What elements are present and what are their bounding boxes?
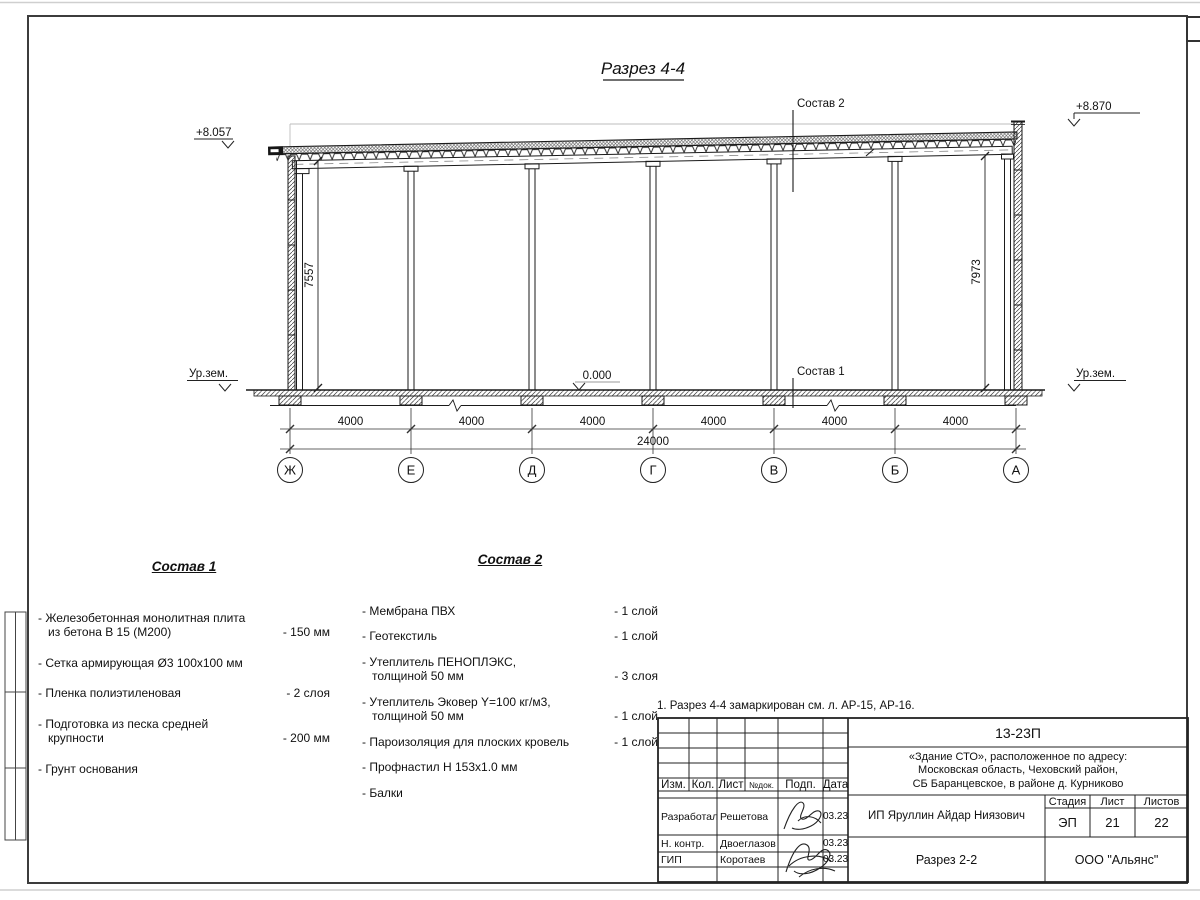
- axis-bubbles: Ж Е Д Г В Б А: [278, 458, 1029, 483]
- dim-bay-6: 4000: [943, 416, 969, 428]
- tb-name-gip: Коротаев: [720, 852, 777, 867]
- composition-1: Состав 1 - Железобетонная монолитная пли…: [38, 560, 330, 792]
- tb-date-gip: 03.23: [823, 852, 848, 867]
- list-item: - Утеплитель Эковер Y=100 кг/м3, толщино…: [362, 695, 658, 724]
- tb-sheets-value: 22: [1135, 808, 1188, 837]
- filing-strip: [5, 612, 26, 840]
- tb-role-developer: Разработал: [661, 798, 716, 835]
- tb-company: ООО "Альянс": [1045, 837, 1188, 882]
- tb-date-control: 03.23: [823, 835, 848, 852]
- tb-sheets-label: Листов: [1135, 795, 1188, 808]
- tb-col-ndok: №док.: [745, 778, 778, 791]
- tb-sheet-value: 21: [1090, 808, 1135, 837]
- list-item: - Пленка полиэтиленовая - 2 слоя: [38, 686, 330, 701]
- list-item: - Геотекстиль - 1 слой: [362, 629, 658, 644]
- list-item: - Профнастил Н 153х1.0 мм: [362, 760, 658, 775]
- list-item: - Утеплитель ПЕНОПЛЭКС, толщиной 50 мм -…: [362, 655, 658, 684]
- floor-slab: [246, 390, 1045, 396]
- sheet-note: 1. Разрез 4-4 замаркирован см. л. АР-15,…: [657, 700, 1087, 712]
- leader-roof-label: Состав 2: [797, 98, 845, 110]
- dim-chain: 4000 4000 4000 4000 4000 4000 24000: [280, 408, 1026, 454]
- axis-label-6: Б: [891, 463, 900, 478]
- list-item: - Сетка армирующая Ø3 100х100 мм: [38, 656, 330, 671]
- axis-label-5: В: [770, 463, 779, 478]
- elevation-zero-label: 0.000: [583, 370, 612, 382]
- list-item: - Балки: [362, 786, 658, 801]
- leader-floor-label: Состав 1: [797, 366, 845, 378]
- dim-height-left: 7557: [304, 157, 322, 392]
- corner-stamp-box: [1187, 17, 1200, 41]
- ground-level-right: Ур.зем.: [1068, 368, 1126, 391]
- leader-floor-composition: Состав 1: [793, 366, 845, 408]
- view-title: Разрез 4-4: [601, 59, 685, 80]
- axis-label-7: А: [1012, 463, 1021, 478]
- dim-height-right-label: 7973: [971, 259, 983, 285]
- dim-bay-5: 4000: [822, 416, 848, 428]
- list-item: - Мембрана ПВХ - 1 слой: [362, 604, 658, 619]
- tb-col-podp: Подп.: [778, 778, 823, 791]
- axis-label-2: Е: [407, 463, 416, 478]
- composition-1-title: Состав 1: [38, 560, 330, 575]
- elevation-right-label: +8.870: [1076, 101, 1112, 113]
- dim-height-right: 7973: [971, 152, 989, 392]
- list-item: - Подготовка из песка средней крупности …: [38, 717, 330, 746]
- axis-label-3: Д: [528, 463, 537, 478]
- tb-client: ИП Яруллин Айдар Ниязович: [848, 795, 1045, 837]
- tb-sheet-label: Лист: [1090, 795, 1135, 808]
- dim-bay-3: 4000: [580, 416, 606, 428]
- columns: [404, 156, 902, 390]
- tb-date-developer: 03.23: [823, 798, 848, 835]
- dim-height-left-label: 7557: [304, 262, 316, 288]
- dim-total: 24000: [637, 436, 669, 448]
- axis-label-4: Г: [649, 463, 656, 478]
- tb-role-gip: ГИП: [661, 852, 716, 867]
- tb-col-izm: Изм.: [658, 778, 689, 791]
- composition-2-title: Состав 2: [362, 553, 658, 568]
- tb-sheet-title: Разрез 2-2: [848, 837, 1045, 882]
- ground-level-left: Ур.зем.: [187, 368, 238, 391]
- signature-developer: [784, 802, 821, 829]
- elevation-zero: 0.000: [573, 370, 620, 390]
- tb-col-kol: Кол.: [689, 778, 717, 791]
- tb-doc-number: 13-23П: [848, 718, 1188, 747]
- footings: [270, 396, 1027, 411]
- composition-2: Состав 2 - Мембрана ПВХ - 1 слой - Геоте…: [362, 553, 658, 811]
- dim-bay-4: 4000: [701, 416, 727, 428]
- elevation-right: +8.870: [1068, 101, 1140, 126]
- view-title-label: Разрез 4-4: [601, 59, 685, 78]
- tb-project-name: «Здание СТО», расположенное по адресу: М…: [848, 747, 1188, 795]
- list-item: - Грунт основания: [38, 762, 330, 777]
- tb-name-control: Двоеглазов: [720, 835, 777, 852]
- tb-role-control: Н. контр.: [661, 835, 716, 852]
- ground-right-label: Ур.зем.: [1076, 368, 1115, 380]
- dim-bay-1: 4000: [338, 416, 364, 428]
- roof-assembly: [268, 131, 1017, 169]
- axis-label-1: Ж: [284, 463, 296, 478]
- list-item: - Железобетонная монолитная плита из бет…: [38, 611, 330, 640]
- list-item: - Пароизоляция для плоских кровель - 1 с…: [362, 735, 658, 750]
- elevation-left-label: +8.057: [196, 127, 232, 139]
- tb-col-data: Дата: [823, 778, 848, 791]
- tb-stage-value: ЭП: [1045, 808, 1090, 837]
- roof-edge-cap: [268, 146, 283, 155]
- elevation-left: +8.057: [194, 127, 234, 148]
- ground-left-label: Ур.зем.: [189, 368, 228, 380]
- dim-bay-2: 4000: [459, 416, 485, 428]
- tb-name-developer: Решетова: [720, 798, 777, 835]
- tb-stage-label: Стадия: [1045, 795, 1090, 808]
- drawing-sheet: Разрез 4-4: [0, 0, 1200, 900]
- tb-col-list: Лист: [717, 778, 745, 791]
